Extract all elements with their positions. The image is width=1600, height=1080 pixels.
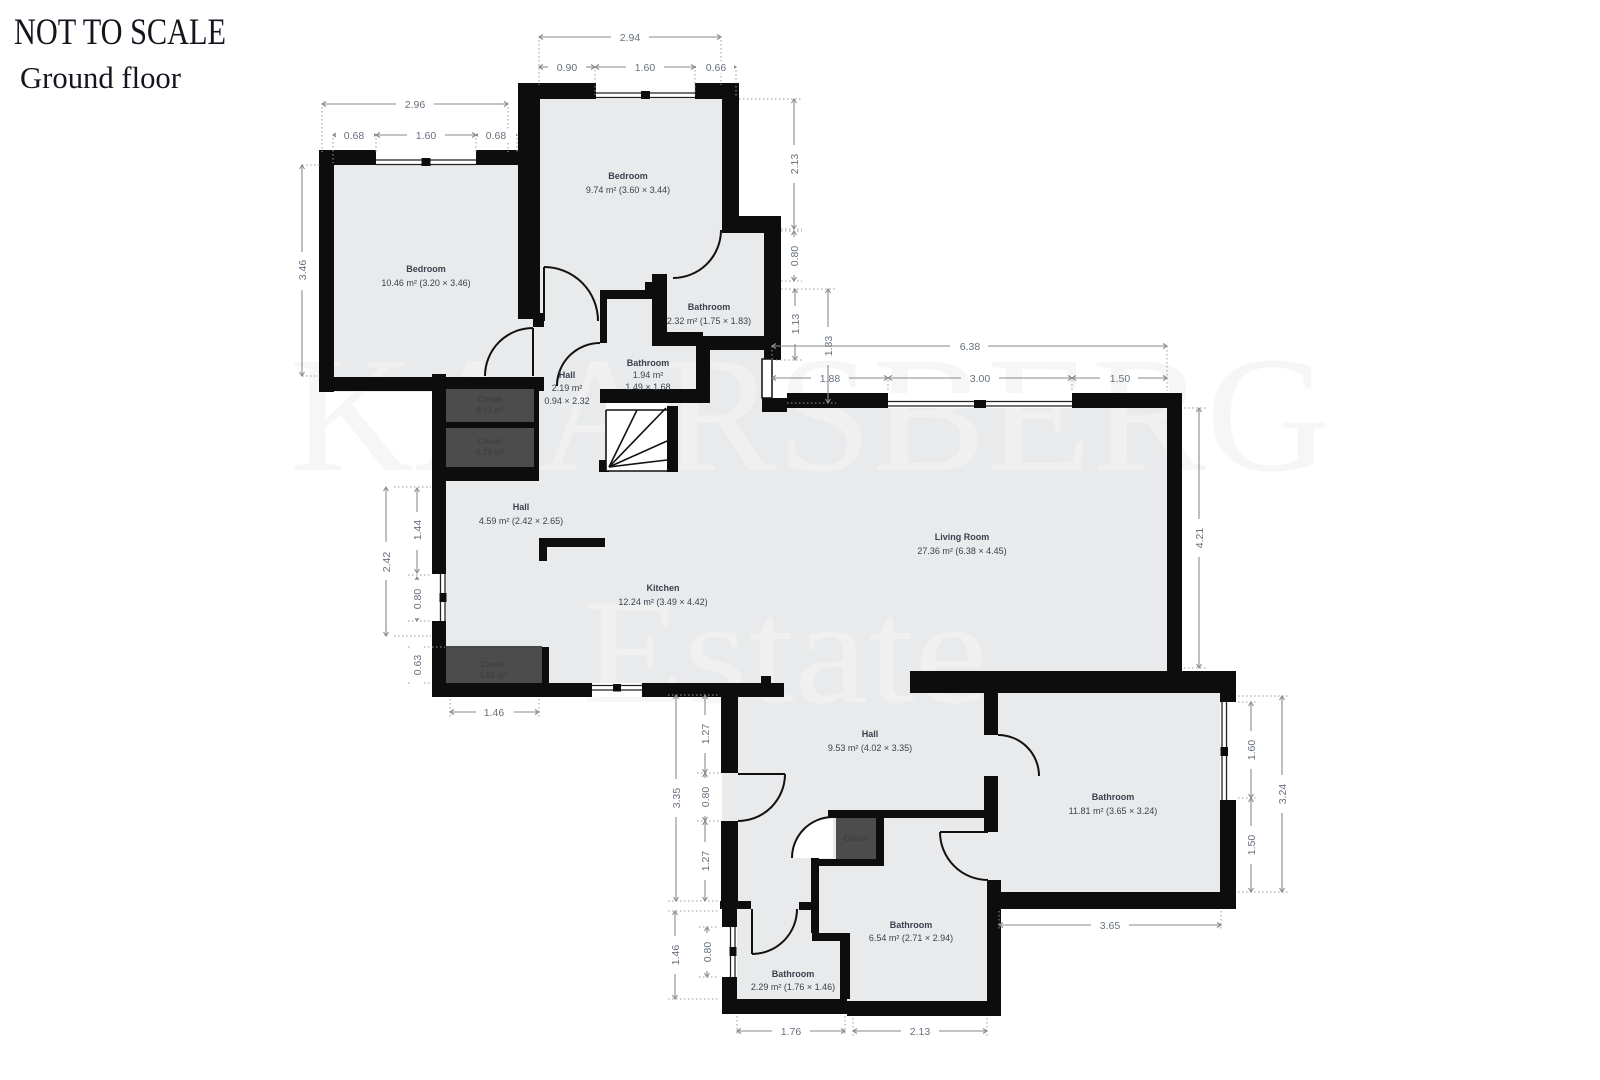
svg-text:0.73 m²: 0.73 m² [476, 406, 504, 415]
svg-text:1.50: 1.50 [1110, 373, 1131, 385]
svg-text:1.46: 1.46 [484, 707, 505, 719]
svg-text:11.81 m² (3.65 × 3.24): 11.81 m² (3.65 × 3.24) [1069, 806, 1158, 816]
svg-text:0.79 m²: 0.79 m² [476, 448, 504, 457]
svg-text:2.29 m² (1.76 × 1.46): 2.29 m² (1.76 × 1.46) [751, 982, 835, 992]
svg-text:3.35: 3.35 [671, 788, 683, 809]
svg-text:2.13: 2.13 [789, 154, 801, 175]
svg-text:NOT TO SCALE: NOT TO SCALE [14, 12, 226, 53]
svg-text:12.24 m² (3.49 × 4.42): 12.24 m² (3.49 × 4.42) [618, 597, 707, 607]
svg-text:0.92 m²: 0.92 m² [479, 671, 507, 680]
svg-text:3.65: 3.65 [1100, 920, 1121, 932]
svg-text:1.27: 1.27 [700, 851, 712, 872]
svg-text:1.46: 1.46 [670, 945, 682, 966]
svg-text:Closet: Closet [481, 660, 506, 669]
svg-text:6.38: 6.38 [960, 341, 981, 353]
svg-text:0.80: 0.80 [700, 787, 712, 808]
svg-text:1.60: 1.60 [1246, 740, 1258, 761]
svg-text:2.32 m² (1.75 × 1.83): 2.32 m² (1.75 × 1.83) [667, 316, 751, 326]
svg-text:3.46: 3.46 [297, 260, 309, 281]
svg-text:6.54 m² (2.71 × 2.94): 6.54 m² (2.71 × 2.94) [869, 933, 953, 943]
svg-text:1.13: 1.13 [790, 314, 802, 335]
svg-text:0.63: 0.63 [412, 655, 424, 676]
svg-text:9.74 m² (3.60 × 3.44): 9.74 m² (3.60 × 3.44) [586, 185, 670, 195]
svg-text:1.60: 1.60 [635, 62, 656, 74]
svg-text:2.94: 2.94 [620, 32, 641, 44]
svg-text:Closet: Closet [478, 437, 503, 446]
svg-text:Bedroom: Bedroom [406, 264, 446, 274]
svg-text:3.24: 3.24 [1277, 784, 1289, 805]
svg-text:1.83: 1.83 [823, 336, 835, 357]
svg-text:10.46 m² (3.20 × 3.46): 10.46 m² (3.20 × 3.46) [381, 278, 470, 288]
svg-text:0.94 × 2.32: 0.94 × 2.32 [544, 396, 589, 406]
svg-text:4.59 m² (2.42 × 2.65): 4.59 m² (2.42 × 2.65) [479, 516, 563, 526]
svg-text:1.49 × 1.68: 1.49 × 1.68 [625, 382, 670, 392]
svg-text:3.00: 3.00 [970, 373, 991, 385]
svg-text:0.68: 0.68 [486, 130, 507, 142]
svg-text:0.80: 0.80 [412, 589, 424, 610]
svg-text:Bathroom: Bathroom [688, 302, 731, 312]
svg-text:1.44: 1.44 [412, 520, 424, 541]
svg-text:1.88: 1.88 [820, 373, 841, 385]
svg-text:Closet: Closet [478, 395, 503, 404]
svg-text:2.19 m²: 2.19 m² [552, 383, 583, 393]
svg-text:Living Room: Living Room [935, 532, 990, 542]
svg-text:2.96: 2.96 [405, 99, 426, 111]
svg-text:1.76: 1.76 [781, 1026, 802, 1038]
svg-text:0.90: 0.90 [557, 62, 578, 74]
svg-text:27.36 m² (6.38 × 4.45): 27.36 m² (6.38 × 4.45) [917, 546, 1006, 556]
svg-text:Estate: Estate [582, 569, 988, 735]
svg-text:2.13: 2.13 [910, 1026, 931, 1038]
svg-text:Bathroom: Bathroom [627, 358, 670, 368]
svg-text:1.27: 1.27 [700, 724, 712, 745]
svg-text:0.80: 0.80 [702, 942, 714, 963]
svg-text:Hall: Hall [559, 370, 576, 380]
svg-text:Bathroom: Bathroom [890, 920, 933, 930]
svg-text:9.53 m² (4.02 × 3.35): 9.53 m² (4.02 × 3.35) [828, 743, 912, 753]
svg-text:Bedroom: Bedroom [608, 171, 648, 181]
svg-text:0.66: 0.66 [706, 62, 727, 74]
svg-text:Hall: Hall [862, 729, 879, 739]
svg-text:Bathroom: Bathroom [1092, 792, 1135, 802]
svg-text:0.80: 0.80 [789, 246, 801, 267]
svg-text:Bathroom: Bathroom [772, 969, 815, 979]
svg-text:1.50: 1.50 [1246, 835, 1258, 856]
svg-text:4.21: 4.21 [1194, 528, 1206, 549]
svg-text:2.42: 2.42 [381, 552, 393, 573]
svg-text:1.60: 1.60 [416, 130, 437, 142]
svg-text:Ground floor: Ground floor [20, 60, 182, 95]
svg-text:Hall: Hall [513, 502, 530, 512]
svg-text:1.94 m²: 1.94 m² [633, 370, 664, 380]
svg-text:Closet: Closet [844, 834, 869, 843]
svg-text:0.68: 0.68 [344, 130, 365, 142]
svg-text:Kitchen: Kitchen [646, 583, 679, 593]
